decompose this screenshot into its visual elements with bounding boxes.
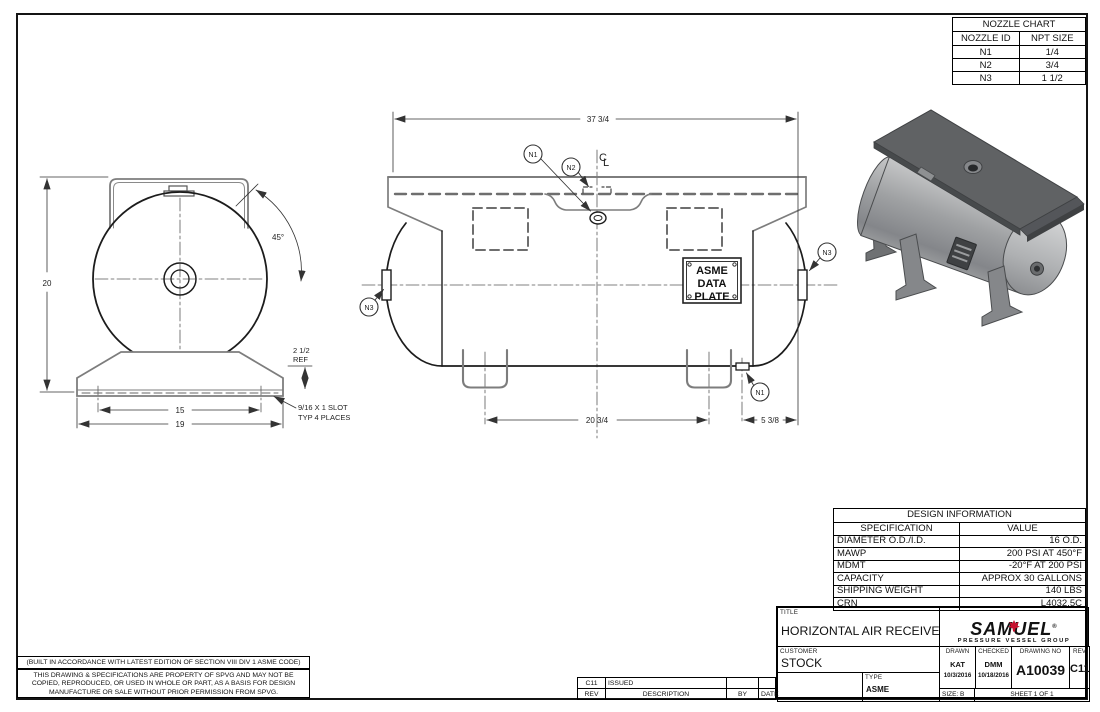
nozzle-n3-right xyxy=(798,270,807,300)
left-head xyxy=(386,223,442,366)
dim-base-outer: 19 xyxy=(176,420,185,429)
balloon-n2: N2 xyxy=(562,158,589,187)
dim-end-offset: 5 3/8 xyxy=(761,416,779,425)
sheet-cell: SHEET 1 OF 1 xyxy=(974,688,1090,702)
table-row: CAPACITYAPPROX 30 GALLONS xyxy=(834,573,1086,586)
balloon-n3-left: N3 xyxy=(360,290,384,317)
checked-by: DMM xyxy=(976,660,1011,669)
base-stand xyxy=(77,352,283,396)
table-row: N3 1 1/2 xyxy=(953,72,1086,85)
svg-text:PLATE: PLATE xyxy=(694,291,729,303)
samuel-logo: SAMUEL® PRESSURE VESSEL GROUP xyxy=(940,619,1088,647)
code-note: (BUILT IN ACCORDANCE WITH LATEST EDITION… xyxy=(17,656,310,669)
front-view: C L ASME DATA PLATE 37 3/4 20 3/4 5 3/8 … xyxy=(360,112,838,438)
dim-leg-spacing: 20 3/4 xyxy=(586,416,609,425)
svg-text:N1: N1 xyxy=(756,390,765,397)
svg-text:N3: N3 xyxy=(823,250,832,257)
balloon-n1-top: N1 xyxy=(524,145,591,211)
drawn-date: 10/3/2016 xyxy=(940,672,975,679)
logo-tagline: PRESSURE VESSEL GROUP xyxy=(940,638,1088,645)
table-row: N1 1/4 xyxy=(953,46,1086,59)
revision-table: C11 ISSUED REV DESCRIPTION BY DATE xyxy=(577,677,776,700)
drawing-no: A10039 xyxy=(1012,662,1069,678)
customer-cell: CUSTOMER STOCK xyxy=(777,646,940,673)
svg-text:DATA: DATA xyxy=(698,278,727,290)
customer-value: STOCK xyxy=(781,656,822,670)
checked-cell: CHECKED DMM 10/18/2016 xyxy=(975,646,1012,689)
drawing-no-cell: DRAWING NO A10039 xyxy=(1011,646,1070,689)
iso-view xyxy=(849,110,1084,326)
table-row: C11 ISSUED xyxy=(578,678,776,689)
rev-number: C11 xyxy=(578,678,606,689)
balloon-n3-right: N3 xyxy=(810,243,837,271)
empty-cell xyxy=(777,672,863,702)
dim-ref-label: REF xyxy=(293,355,308,364)
svg-text:N2: N2 xyxy=(567,165,576,172)
slot-note-line2: TYP 4 PLACES xyxy=(298,413,350,422)
table-row: MDMT-20°F AT 200 PSI xyxy=(834,560,1086,573)
design-info-title: DESIGN INFORMATION xyxy=(834,509,1086,523)
title-block: TITLE HORIZONTAL AIR RECEIVER SAMUEL® PR… xyxy=(776,606,1087,699)
table-row: MAWP200 PSI AT 450°F xyxy=(834,548,1086,561)
title-cell: TITLE HORIZONTAL AIR RECEIVER xyxy=(777,607,940,647)
drawn-cell: DRAWN KAT 10/3/2016 xyxy=(939,646,976,689)
nozzle-chart-title: NOZZLE CHART xyxy=(953,18,1086,32)
nozzle-chart: NOZZLE CHART NOZZLE ID NPT SIZE N1 1/4 N… xyxy=(952,17,1086,85)
bracket-hidden-right xyxy=(667,208,722,250)
dim-ref-height: 2 1/2 xyxy=(293,346,310,355)
bracket-hidden-left xyxy=(473,208,528,250)
checked-date: 10/18/2016 xyxy=(976,672,1011,679)
rev-date xyxy=(759,678,776,689)
top-coupling xyxy=(169,186,187,191)
dim-base-inner: 15 xyxy=(176,406,185,415)
svg-text:N1: N1 xyxy=(529,152,538,159)
slot-note-line1: 9/16 X 1 SLOT xyxy=(298,403,348,412)
plate-notch xyxy=(545,194,651,210)
size-cell: SIZE: B xyxy=(939,688,975,702)
rev-description: ISSUED xyxy=(606,678,727,689)
nozzle-n1-drain xyxy=(736,363,749,370)
rev-cell: REV C11 xyxy=(1069,646,1090,689)
table-row: SHIPPING WEIGHT140 LBS xyxy=(834,585,1086,598)
size-value: SIZE: B xyxy=(942,691,974,698)
rev-value: C11 xyxy=(1070,663,1089,675)
rev-by xyxy=(727,678,759,689)
nozzle-n1-top xyxy=(590,212,606,224)
nozzle-chart-col-size: NPT SIZE xyxy=(1019,32,1086,46)
title-label: TITLE xyxy=(780,609,798,616)
balloon-n1-drain: N1 xyxy=(747,373,770,401)
drawn-by: KAT xyxy=(940,660,975,669)
dim-angle: 45° xyxy=(272,233,284,242)
sheet-value: SHEET 1 OF 1 xyxy=(975,691,1089,698)
nozzle-n3-left xyxy=(382,270,391,300)
type-value: ASME xyxy=(866,685,889,694)
maple-leaf-icon xyxy=(1007,619,1021,631)
svg-text:L: L xyxy=(603,157,609,169)
table-row: DIAMETER O.D./I.D.16 O.D. xyxy=(834,535,1086,548)
dim-overall-length: 37 3/4 xyxy=(587,115,610,124)
end-view: 45° 20 15 19 9/16 X 1 SLOT TYP 4 PLACES … xyxy=(40,177,350,429)
page-title: HORIZONTAL AIR RECEIVER xyxy=(781,624,940,638)
nozzle-chart-col-id: NOZZLE ID xyxy=(953,32,1020,46)
table-row: N2 3/4 xyxy=(953,59,1086,72)
svg-text:ASME: ASME xyxy=(696,265,728,277)
svg-text:N3: N3 xyxy=(365,305,374,312)
dim-height: 20 xyxy=(43,279,52,288)
logo-cell: SAMUEL® PRESSURE VESSEL GROUP xyxy=(939,607,1089,647)
drawing-sheet: 45° 20 15 19 9/16 X 1 SLOT TYP 4 PLACES … xyxy=(0,0,1100,712)
table-row: REV DESCRIPTION BY DATE xyxy=(578,689,776,700)
design-information-table: DESIGN INFORMATION SPECIFICATION VALUE D… xyxy=(833,508,1086,611)
property-note: THIS DRAWING & SPECIFICATIONS ARE PROPER… xyxy=(17,669,310,698)
type-cell: TYPE ASME xyxy=(862,672,940,702)
